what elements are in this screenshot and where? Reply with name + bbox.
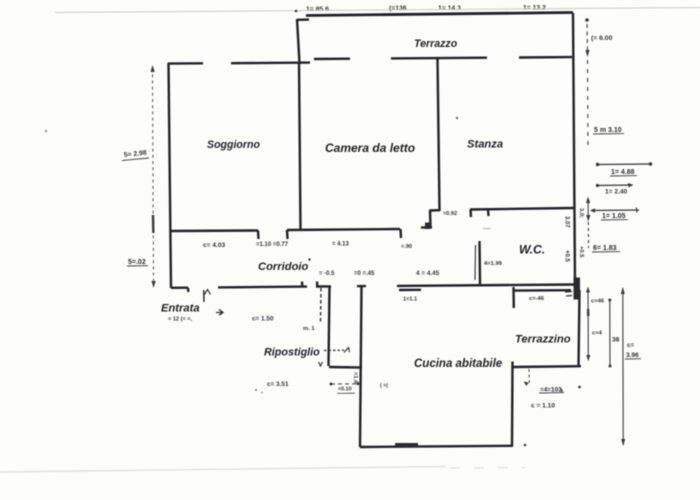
svg-text:( =(: ( =(	[380, 383, 388, 389]
svg-text:= 4.13: = 4.13	[332, 242, 350, 248]
svg-text:Stanza: Stanza	[467, 139, 503, 151]
svg-text:Corridoio: Corridoio	[258, 261, 309, 273]
svg-text:5=.02: 5=.02	[128, 259, 146, 266]
svg-text:(=136: (=136	[389, 5, 407, 12]
svg-text:=1.10 =0.77: =1.10 =0.77	[256, 242, 289, 248]
svg-text:=0.92: =0.92	[443, 211, 457, 217]
svg-text:=0 =.45: =0 =.45	[354, 271, 375, 277]
svg-text:c = 1.10: c = 1.10	[531, 403, 555, 410]
svg-text:4=1.99: 4=1.99	[484, 261, 503, 267]
svg-text:Terrazzo: Terrazzo	[414, 38, 458, 50]
svg-text:c=4: c=4	[592, 331, 603, 337]
svg-text:1= 14.3: 1= 14.3	[438, 5, 461, 12]
svg-text:c=-46: c=-46	[529, 296, 545, 302]
svg-text:Ripostiglio: Ripostiglio	[264, 347, 320, 359]
svg-text:5 m 3.10: 5 m 3.10	[594, 127, 622, 134]
svg-text:4 = 4.45: 4 = 4.45	[416, 270, 440, 277]
svg-text:1= 1.05: 1= 1.05	[602, 213, 626, 220]
svg-text:1= 2.40: 1= 2.40	[605, 189, 628, 196]
svg-text:+0.5: +0.5	[578, 246, 584, 258]
svg-text:1= 4.88: 1= 4.88	[611, 169, 635, 176]
svg-text:=0.10: =0.10	[338, 387, 352, 393]
svg-text:W.C.: W.C.	[519, 243, 545, 257]
svg-text:=.90: =.90	[401, 244, 412, 250]
svg-text:c= 4.03: c= 4.03	[203, 242, 226, 249]
svg-text:c=46: c=46	[591, 299, 605, 305]
svg-text:3,0;: 3,0;	[578, 208, 584, 218]
svg-text:= 12 (= =,: = 12 (= =,	[168, 317, 193, 323]
svg-text:= -0.5: = -0.5	[319, 271, 335, 277]
svg-text:c=: c=	[627, 342, 634, 349]
svg-text:m. 1: m. 1	[303, 326, 315, 332]
svg-text:c= 1.50: c= 1.50	[252, 316, 274, 323]
svg-text:Camera da letto: Camera da letto	[325, 141, 415, 155]
svg-text:=1.6: =1.6	[352, 372, 358, 384]
svg-text:6= 1.83: 6= 1.83	[593, 245, 617, 252]
svg-text:1=1.1: 1=1.1	[403, 297, 417, 303]
svg-text:1= 13.2: 1= 13.2	[523, 5, 546, 12]
svg-text:c= 3.51: c= 3.51	[267, 381, 289, 388]
svg-text:3.07: 3.07	[564, 216, 570, 228]
svg-text:38: 38	[612, 337, 620, 344]
svg-text:(= 6.00: (= 6.00	[591, 35, 613, 42]
svg-text:3.96: 3.96	[626, 352, 639, 359]
svg-text:1= 85.6: 1= 85.6	[306, 6, 329, 13]
svg-text:Soggiorno: Soggiorno	[207, 139, 260, 151]
svg-text:Entrata: Entrata	[161, 303, 200, 315]
svg-text:Terrazzino: Terrazzino	[515, 334, 571, 346]
svg-text:+0.5: +0.5	[564, 250, 570, 263]
svg-text:.....: .....	[483, 225, 491, 231]
svg-text:Cucina abitabile: Cucina abitabile	[414, 358, 503, 370]
